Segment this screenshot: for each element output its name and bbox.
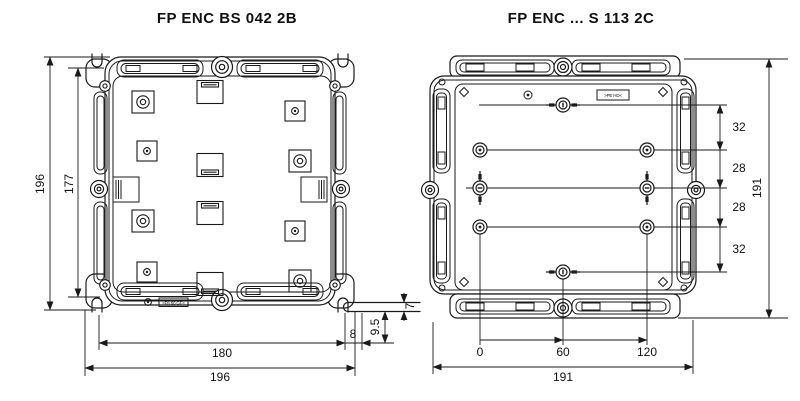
corner-screw — [330, 280, 341, 291]
corner-screw — [100, 81, 111, 92]
bottom-screw-boss — [212, 290, 233, 311]
technical-drawing-canvas: FP ENC BS 042 2B — [0, 0, 800, 401]
material-mark-text: >PA 66 GF< — [162, 301, 185, 306]
dim-outer-height: 191 — [750, 178, 764, 198]
dim-spacing-bottom: 32 — [732, 242, 746, 256]
dim-spacing-lower-mid: 28 — [732, 200, 746, 214]
right-side-boss — [333, 181, 350, 198]
corner-screw — [330, 81, 341, 92]
dim-flange-thickness: 7 — [403, 302, 417, 309]
right-side-boss — [688, 182, 705, 199]
dim-hole-x-0: 0 — [477, 345, 484, 359]
dim-outer-width: 191 — [553, 370, 573, 384]
dim-outer-height: 196 — [33, 174, 47, 194]
material-mark-text: >PE HD< — [604, 93, 622, 98]
left-side-boss — [91, 181, 108, 198]
right-top-rail — [450, 56, 680, 78]
mounting-hole — [640, 220, 654, 234]
mounting-hole — [473, 143, 487, 157]
technical-drawing-page: FP ENC BS 042 2B — [0, 0, 800, 401]
left-drawing-title: FP ENC BS 042 2B — [157, 10, 297, 27]
dim-spacing-upper-mid: 28 — [732, 161, 746, 175]
dim-spacing-top: 32 — [732, 120, 746, 134]
right-bottom-rail — [450, 294, 680, 318]
right-drawing: FP ENC ... S 113 2C — [422, 10, 789, 384]
dim-flange-width: 8 — [350, 327, 357, 341]
mounting-hole — [640, 143, 654, 157]
dim-hole-x-60: 60 — [556, 345, 570, 359]
dim-flange-height: 9.5 — [368, 318, 382, 335]
mounting-hole — [473, 220, 487, 234]
dim-inner-width: 180 — [212, 346, 232, 360]
left-side-boss — [422, 182, 439, 199]
left-drawing: FP ENC BS 042 2B — [33, 10, 420, 384]
right-drawing-title: FP ENC ... S 113 2C — [508, 10, 655, 27]
top-screw-boss — [212, 57, 233, 78]
corner-screw — [100, 280, 111, 291]
dim-inner-height: 177 — [62, 174, 76, 194]
dim-hole-x-120: 120 — [637, 345, 657, 359]
dim-outer-width: 196 — [210, 370, 230, 384]
